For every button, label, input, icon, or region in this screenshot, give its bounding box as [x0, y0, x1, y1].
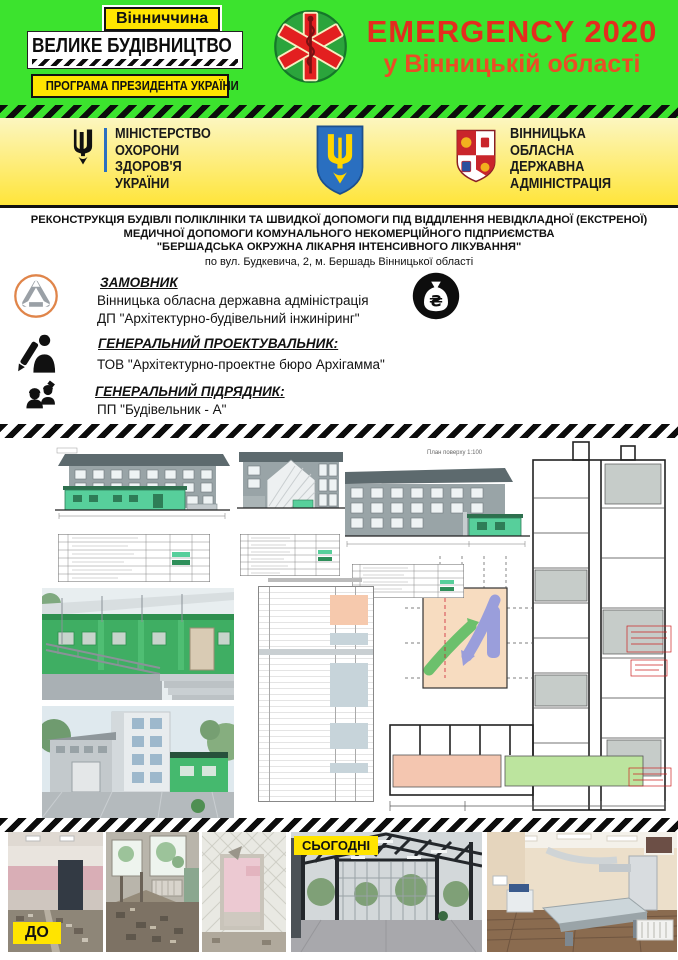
- contractor-line: ПП "Будівельник - А": [97, 402, 226, 417]
- elevation-drawing-2: [237, 446, 345, 526]
- room-schedule-table: [258, 586, 374, 802]
- project-address: по вул. Будкевича, 2, м. Бершадь Вінниць…: [0, 255, 678, 269]
- oda-name: ВІННИЦЬКА ОБЛАСНА ДЕРЖАВНА АДМІНІСТРАЦІЯ: [510, 126, 611, 192]
- customer-line2: ДП "Архітектурно-будівельний інжиніринг": [97, 311, 360, 326]
- vinnytsia-oda-shield-icon: [455, 128, 497, 184]
- project-title-block: РЕКОНСТРУКЦІЯ БУДІВЛІ ПОЛІКЛІНІКИ ТА ШВИ…: [0, 208, 678, 270]
- hazard-strip-small: [32, 59, 238, 66]
- photo-xray-room: [487, 832, 677, 952]
- header-banner: Вінниччина ВЕЛИКЕ БУДІВНИЦТВО ПРОГРАМА П…: [0, 0, 678, 105]
- before-label: ДО: [13, 922, 61, 944]
- photo-demolition-room: [106, 832, 199, 952]
- hazard-stripe-top: [0, 105, 678, 118]
- elevation-drawing-1: [55, 446, 230, 526]
- star-of-life-icon: [273, 9, 348, 84]
- plan-green-zone: [505, 756, 643, 786]
- logos-band: МІНІСТЕРСТВО ОХОРОНИ ЗДОРОВ'Я УКРАЇНИ ВІ…: [0, 118, 678, 208]
- program-subtitle: ПРОГРАМА ПРЕЗИДЕНТА УКРАЇНИ: [46, 79, 239, 93]
- architect-pencil-icon: [18, 332, 60, 374]
- photo-before-corridor: ДО: [8, 832, 103, 952]
- elevation-legend-1: [58, 534, 210, 582]
- elevation-drawing-3: [345, 458, 530, 556]
- moh-line: ЗДОРОВ'Я: [115, 159, 211, 176]
- emergency-subtitle: у Вінницькій області: [362, 50, 662, 79]
- moh-line: МІНІСТЕРСТВО: [115, 126, 211, 143]
- oda-line: ОБЛАСНА: [510, 143, 611, 160]
- photo-doorway-tiles: [202, 832, 286, 952]
- customer-line1: Вінницька обласна державна адміністрація: [97, 293, 369, 308]
- customer-label: ЗАМОВНИК: [100, 275, 178, 290]
- hazard-stripe-mid1: [0, 424, 678, 438]
- emergency-title: EMERGENCY 2020: [362, 14, 662, 50]
- program-title: ВЕЛИКЕ БУДІВНИЦТВО: [32, 34, 205, 58]
- project-title-line2: МЕДИЧНОЇ ДОПОМОГИ КОМУНАЛЬНОГО НЕКОМЕРЦІ…: [0, 228, 678, 242]
- money-bag-icon: ₴: [412, 272, 460, 320]
- room-schedule-title: [268, 578, 362, 582]
- builders-icon: [22, 378, 60, 416]
- designer-line: ТОВ "Архітектурно-проектне бюро Архігамм…: [97, 357, 385, 372]
- today-label: СЬОГОДНІ: [294, 836, 378, 855]
- hazard-stripe-mid2: [0, 818, 678, 832]
- photo-strip: ДО: [0, 832, 678, 952]
- oda-line: ДЕРЖАВНА: [510, 159, 611, 176]
- info-section: ЗАМОВНИК Вінницька обласна державна адмі…: [0, 270, 678, 424]
- drawings-section: План поверху 1:100: [0, 438, 678, 818]
- floor-plan-title: План поверху 1:100: [427, 450, 483, 456]
- oda-line: ВІННИЦЬКА: [510, 126, 611, 143]
- moh-divider: [104, 128, 107, 172]
- ukraine-coat-of-arms-icon: [314, 123, 366, 199]
- plan-pink-zone: [393, 755, 501, 787]
- render-photo-courtyard: [42, 706, 234, 818]
- elevation-legend-2: [240, 534, 340, 576]
- moh-line: ОХОРОНИ: [115, 143, 211, 160]
- render-photo-entrance: [42, 588, 234, 700]
- big-construction-box: ВЕЛИКЕ БУДІВНИЦТВО: [27, 31, 243, 69]
- project-title-line3: "БЕРШАДСЬКА ОКРУЖНА ЛІКАРНЯ ІНТЕНСИВНОГО…: [0, 241, 678, 255]
- moh-trident-icon: [70, 128, 96, 166]
- project-title-line1: РЕКОНСТРУКЦІЯ БУДІВЛІ ПОЛІКЛІНІКИ ТА ШВИ…: [0, 214, 678, 228]
- moh-line: УКРАЇНИ: [115, 176, 211, 193]
- svg-text:₴: ₴: [429, 291, 443, 310]
- photo-steel-frame-today: СЬОГОДНІ: [291, 832, 482, 952]
- poster: Вінниччина ВЕЛИКЕ БУДІВНИЦТВО ПРОГРАМА П…: [0, 0, 678, 960]
- moh-name: МІНІСТЕРСТВО ОХОРОНИ ЗДОРОВ'Я УКРАЇНИ: [115, 126, 211, 192]
- recycle-triangle-icon: [13, 273, 59, 319]
- oda-line: АДМІНІСТРАЦІЯ: [510, 176, 611, 193]
- contractor-label: ГЕНЕРАЛЬНИЙ ПІДРЯДНИК:: [95, 384, 285, 399]
- region-badge: Вінниччина: [104, 7, 220, 31]
- designer-label: ГЕНЕРАЛЬНИЙ ПРОЕКТУВАЛЬНИК:: [98, 336, 338, 351]
- program-subtitle-badge: ПРОГРАМА ПРЕЗИДЕНТА УКРАЇНИ: [31, 74, 229, 98]
